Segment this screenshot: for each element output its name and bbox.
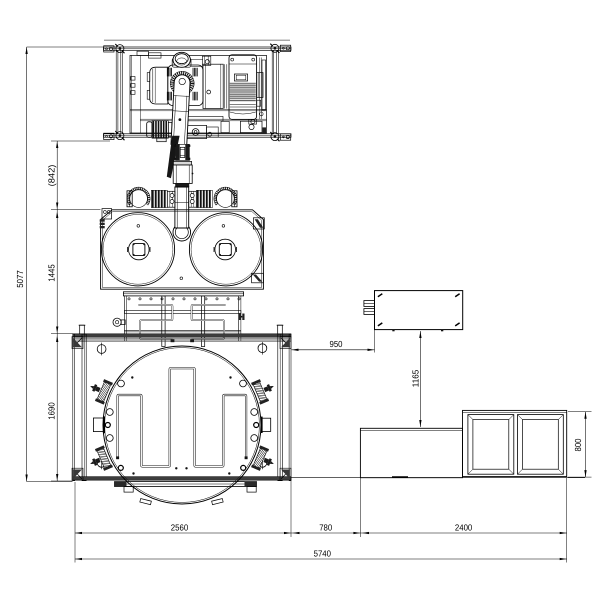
- svg-text:1690: 1690: [47, 402, 57, 419]
- svg-text:1445: 1445: [47, 264, 57, 281]
- svg-text:800: 800: [573, 438, 583, 451]
- svg-text:5740: 5740: [314, 548, 331, 558]
- svg-text:950: 950: [330, 339, 343, 349]
- svg-text:(842): (842): [47, 165, 57, 187]
- svg-text:5077: 5077: [15, 270, 25, 287]
- svg-text:1165: 1165: [411, 370, 421, 387]
- svg-text:780: 780: [319, 523, 332, 533]
- svg-text:2400: 2400: [455, 523, 472, 533]
- svg-text:2560: 2560: [171, 523, 188, 533]
